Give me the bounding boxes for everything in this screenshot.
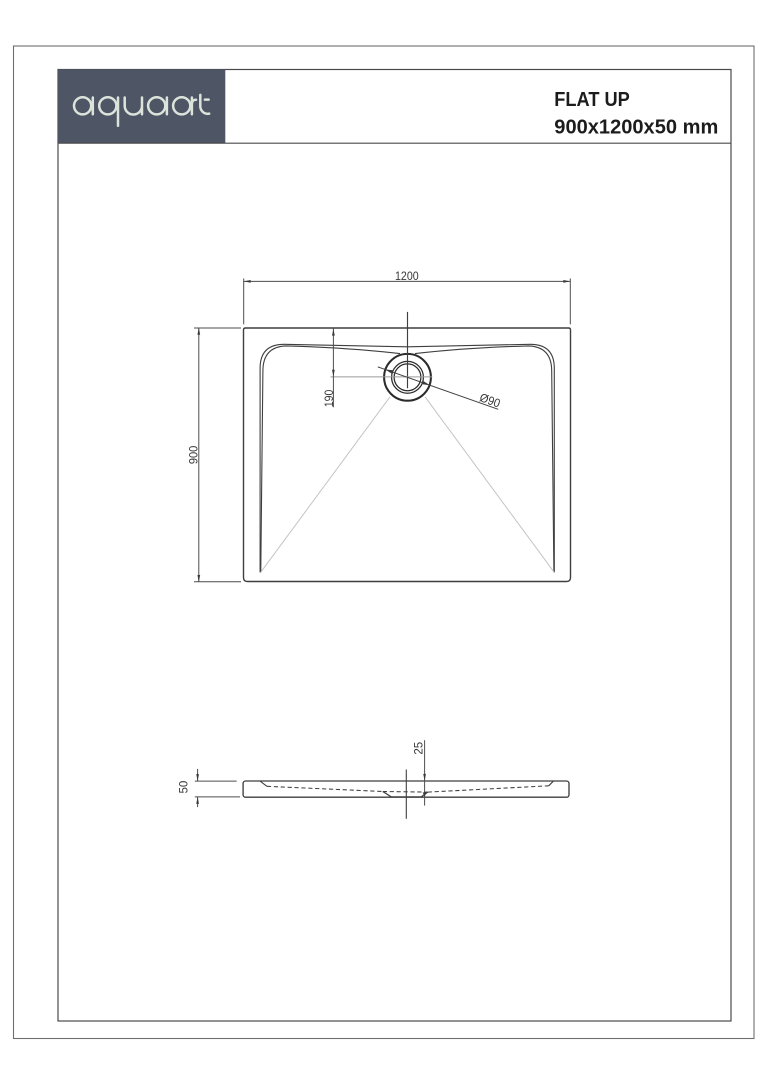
svg-text:1200: 1200	[395, 269, 419, 283]
svg-text:25: 25	[411, 741, 425, 754]
svg-text:900x1200x50 mm: 900x1200x50 mm	[554, 116, 718, 139]
svg-text:50: 50	[177, 780, 191, 793]
svg-text:FLAT UP: FLAT UP	[554, 88, 630, 111]
svg-text:190: 190	[322, 389, 336, 407]
svg-text:Ø90: Ø90	[478, 390, 503, 410]
svg-text:900: 900	[187, 445, 201, 464]
